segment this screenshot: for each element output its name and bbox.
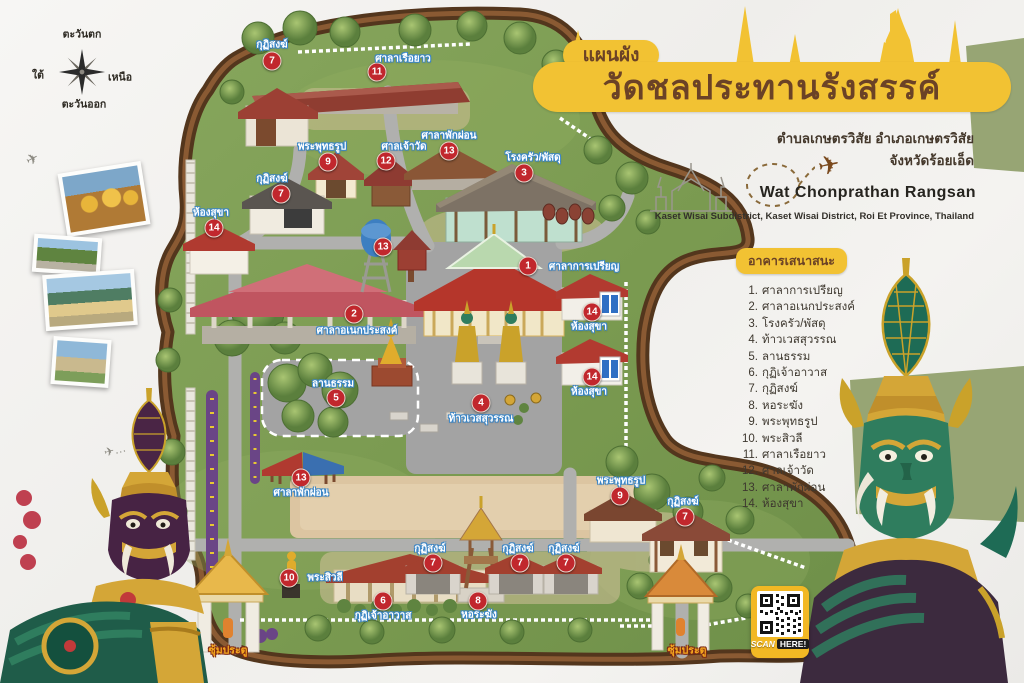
legend-item: 13.ศาลาพักผ่อน bbox=[736, 480, 855, 496]
qr-code-box[interactable]: SCAN HERE! bbox=[751, 586, 809, 658]
compass-label-left: ใต้ bbox=[32, 67, 44, 84]
poster-subtitle-line2: จังหวัดร้อยเอ็ด bbox=[889, 149, 974, 171]
legend-item: 11.ศาลาเรือยาว bbox=[736, 447, 855, 463]
legend-item: 14.ห้องสุขา bbox=[736, 496, 855, 512]
compass-rose-icon bbox=[58, 48, 106, 96]
temple-line-art-icon bbox=[648, 163, 734, 213]
legend-item: 4.ท้าวเวสสุวรรณ bbox=[736, 332, 855, 348]
compass-label-bottom: ตะวันออก bbox=[62, 96, 107, 113]
yaksha-guardian-statue-left bbox=[0, 388, 215, 683]
legend-item: 8.หอระฆัง bbox=[736, 398, 855, 414]
qr-code bbox=[757, 591, 803, 637]
poster-title-english: Wat Chonprathan Rangsan bbox=[760, 184, 976, 202]
photo-temple-grounds bbox=[32, 234, 102, 277]
photo-temple-gate bbox=[50, 336, 111, 388]
legend-item: 7.กุฏิสงฆ์ bbox=[736, 381, 855, 397]
photo-buddha-statues bbox=[58, 161, 151, 237]
legend-item: 2.ศาลาอเนกประสงค์ bbox=[736, 299, 855, 315]
legend-item: 6.กุฏิเจ้าอาวาส bbox=[736, 365, 855, 381]
temple-map-poster: แผนผัง วัดชลประทานรังสรรค์ ตำบลเกษตรวิสั… bbox=[0, 0, 1024, 683]
legend-item: 12.ศาลเจ้าวัด bbox=[736, 463, 855, 479]
poster-subtitle-english: Kaset Wisai Subdistrict, Kaset Wisai Dis… bbox=[655, 211, 974, 222]
legend-item: 5.ลานธรรม bbox=[736, 349, 855, 365]
legend-item: 3.โรงครัว/พัสดุ bbox=[736, 316, 855, 332]
legend-item: 10.พระสิวลี bbox=[736, 431, 855, 447]
legend-panel: อาคารเสนาสนะ 1.ศาลาการเปรียญ2.ศาลาอเนกปร… bbox=[736, 248, 855, 513]
qr-here-label: HERE! bbox=[777, 639, 809, 649]
poster-title-main: วัดชลประทานรังสรรค์ bbox=[533, 62, 1011, 112]
legend-item: 1.ศาลาการเปรียญ bbox=[736, 283, 855, 299]
qr-scan-label: SCAN bbox=[751, 639, 775, 649]
compass-label-top: ตะวันตก bbox=[63, 26, 102, 43]
legend-header: อาคารเสนาสนะ bbox=[736, 248, 847, 274]
compass-label-right: เหนือ bbox=[108, 69, 132, 86]
photo-temple-pavilion bbox=[42, 269, 138, 331]
legend-item: 9.พระพุทธรูป bbox=[736, 414, 855, 430]
legend-items: 1.ศาลาการเปรียญ2.ศาลาอเนกประสงค์3.โรงครั… bbox=[736, 283, 855, 513]
poster-subtitle-line1: ตำบลเกษตรวิสัย อำเภอเกษตรวิสัย bbox=[777, 127, 974, 149]
